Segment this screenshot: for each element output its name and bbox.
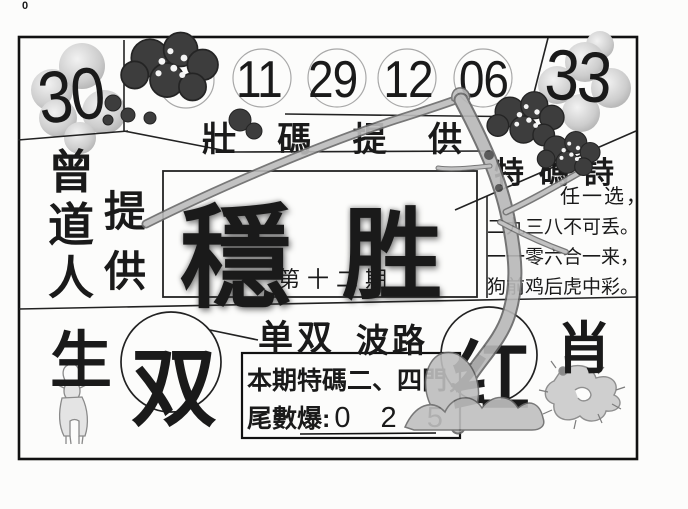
main-title-char-1: 穩 (180, 168, 292, 330)
band-char: 壯 (202, 112, 236, 161)
band-char: 碼 (277, 112, 311, 161)
issue-label: 第十二期 (278, 262, 394, 294)
tip-line-1: 本期特碼二、四門， (247, 361, 472, 397)
special-number: 11 (236, 49, 282, 109)
special-number: 12 (383, 49, 432, 109)
left-big-number: 30 (34, 51, 107, 141)
zodiac-char: 肖 (556, 304, 612, 385)
poem-line: 一一零六合一来， (487, 242, 639, 269)
life-char: 生 (50, 310, 112, 400)
name-char: 道 (48, 199, 94, 252)
special-number: 29 (308, 49, 357, 109)
master-name-vertical: 曾 道 人 (48, 146, 94, 305)
special-number: 06 (459, 49, 508, 109)
even-pick-char: 双 (131, 318, 217, 443)
provide-char: 提 (104, 182, 146, 242)
main-title-char-2: 胜 (342, 174, 442, 319)
band-label: 壯 碼 提 供 (202, 112, 462, 161)
wave-route-label: 波路 (356, 314, 428, 362)
poem-line: 狗前鸡后虎中彩。 (487, 272, 639, 299)
right-big-number: 33 (542, 34, 613, 120)
red-pick-char: 红 (452, 316, 530, 428)
band-char: 供 (428, 112, 462, 161)
special-number-row: 11 29 12 06 (236, 52, 508, 106)
provide-vertical: 提 供 (104, 182, 146, 302)
name-char: 人 (48, 252, 94, 305)
provide-char: 供 (104, 242, 146, 302)
lottery-tip-sheet-scan: 0 30 33 11 29 12 06 壯 碼 提 供 曾 道 人 提 供 穩 … (0, 0, 688, 509)
tip-line-2: 尾數爆:0 2 5 (247, 399, 454, 435)
page-corner-mark: 0 (22, 0, 28, 12)
odd-even-label: 单双 (258, 310, 336, 361)
band-char: 提 (353, 112, 387, 161)
poem-line: 任一选， (560, 180, 648, 209)
tip-digits: 0 2 5 (334, 402, 454, 434)
poem-line: 二九三八不可丢。 (487, 212, 639, 239)
tip-line-2-label: 尾數爆: (247, 405, 330, 433)
name-char: 曾 (48, 146, 94, 199)
